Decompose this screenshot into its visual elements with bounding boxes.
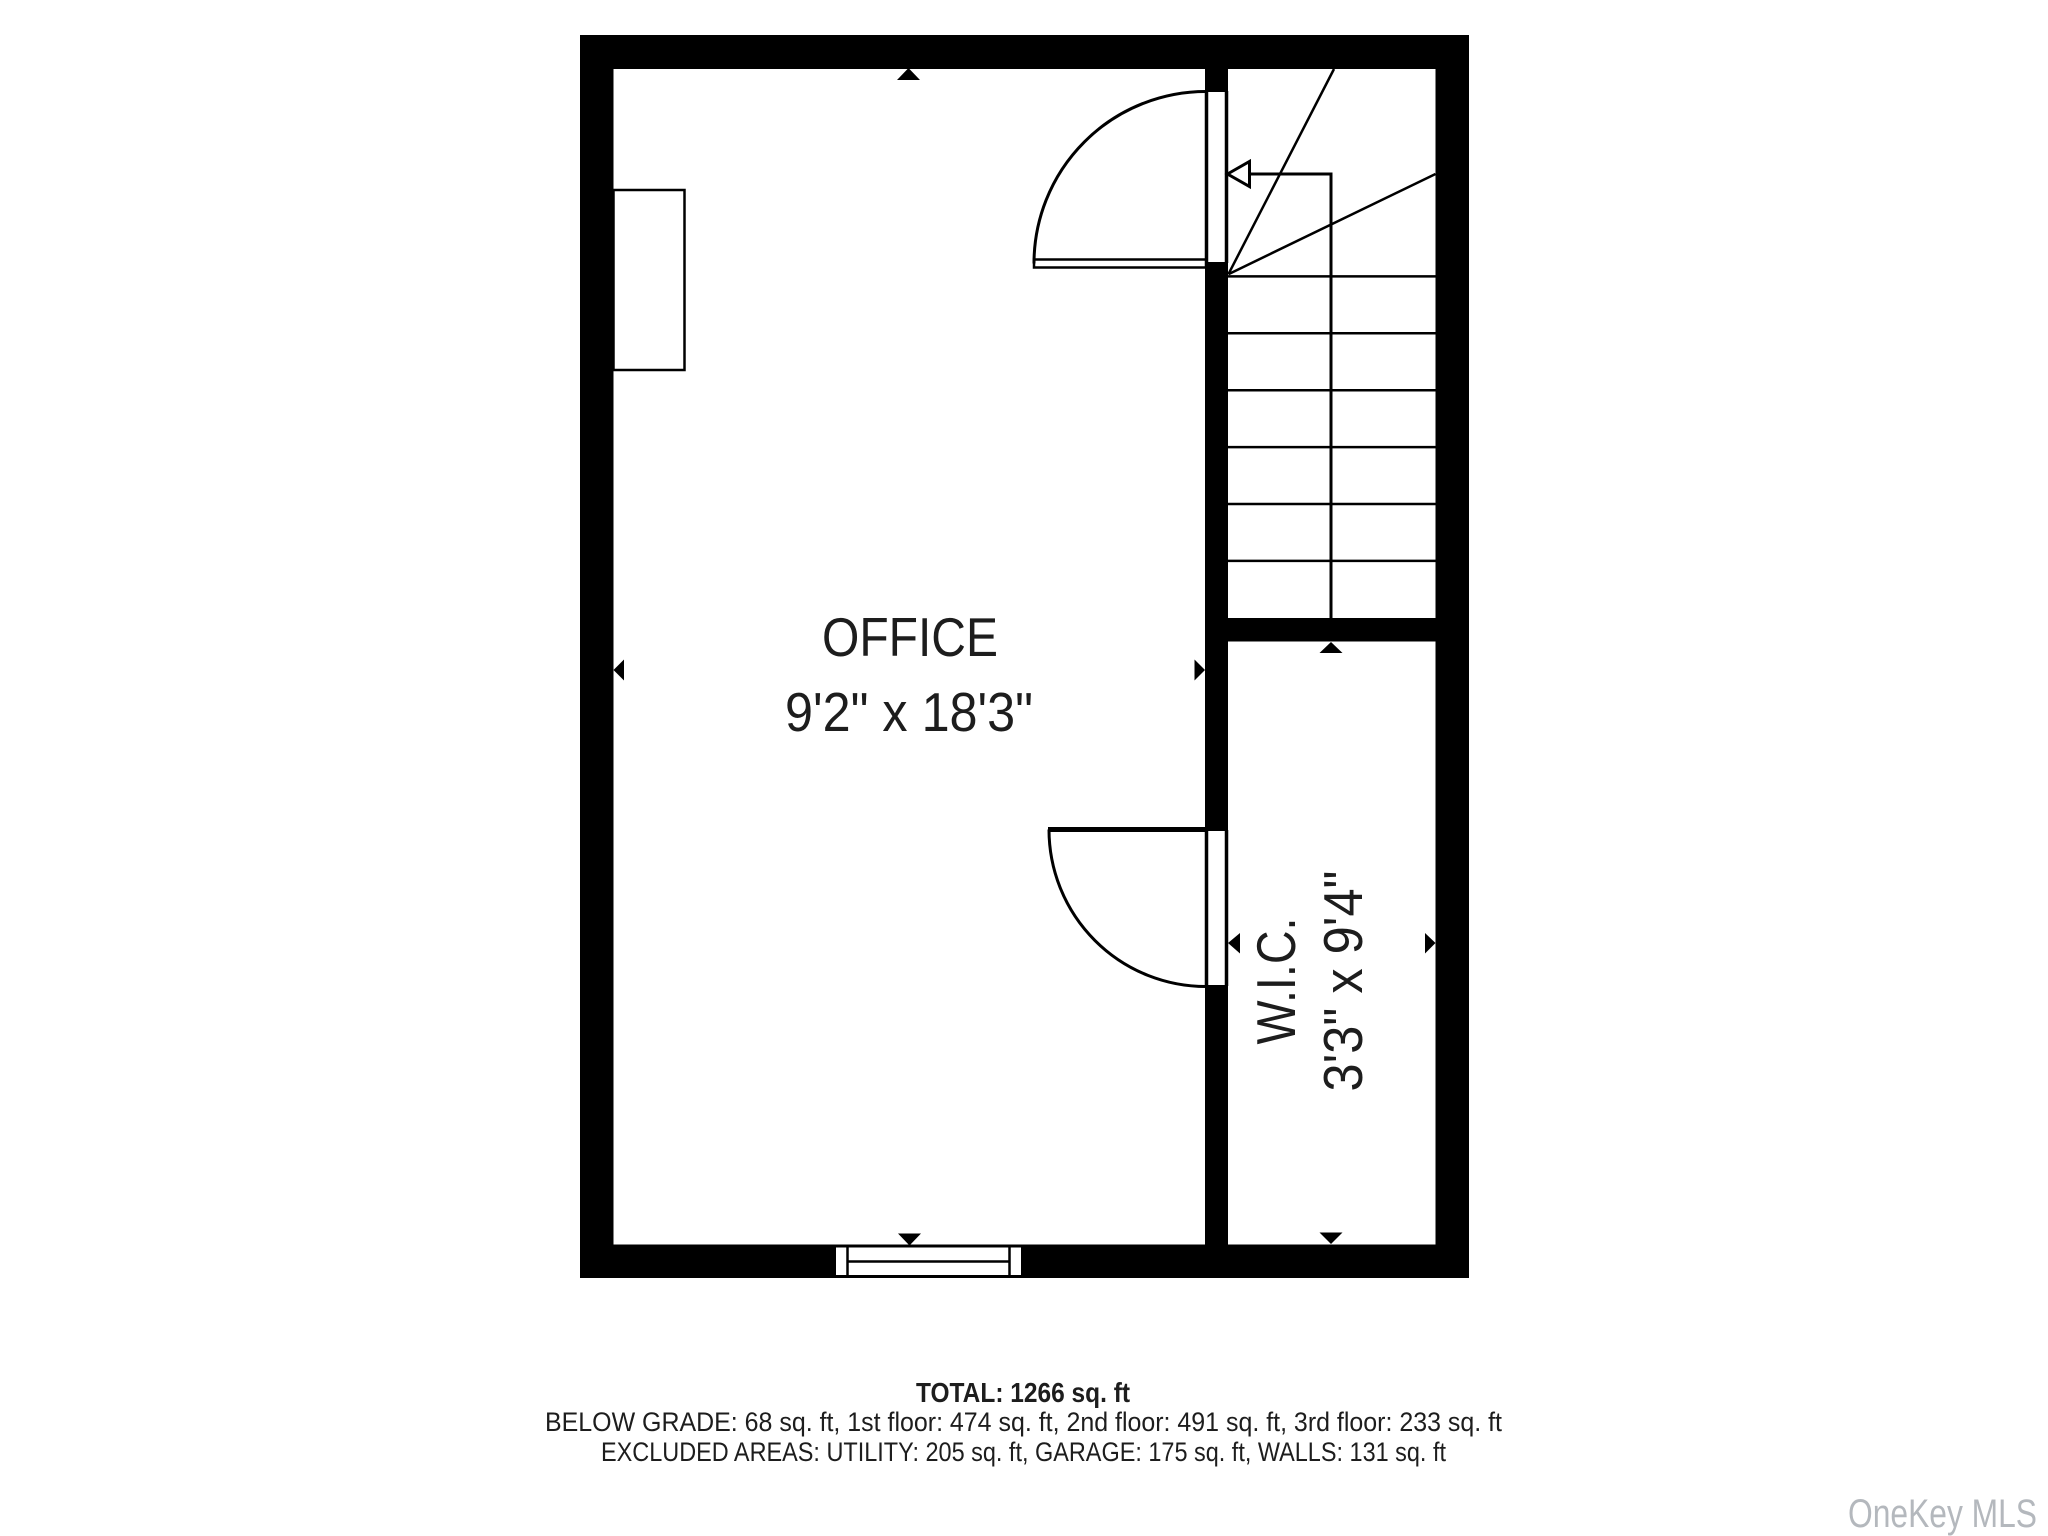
svg-text:TOTAL: 1266 sq. ft: TOTAL: 1266 sq. ft	[916, 1377, 1130, 1408]
svg-text:9'2" x 18'3": 9'2" x 18'3"	[785, 681, 1033, 743]
svg-text:OneKey MLS: OneKey MLS	[1848, 1492, 2037, 1536]
svg-text:BELOW GRADE: 68 sq. ft, 1st fl: BELOW GRADE: 68 sq. ft, 1st floor: 474 s…	[545, 1407, 1502, 1437]
svg-text:EXCLUDED AREAS: UTILITY: 205 s: EXCLUDED AREAS: UTILITY: 205 sq. ft, GAR…	[601, 1437, 1446, 1467]
svg-text:W.I.C.: W.I.C.	[1245, 918, 1307, 1045]
svg-text:3'3" x 9'4": 3'3" x 9'4"	[1312, 871, 1374, 1092]
svg-text:OFFICE: OFFICE	[822, 606, 998, 668]
